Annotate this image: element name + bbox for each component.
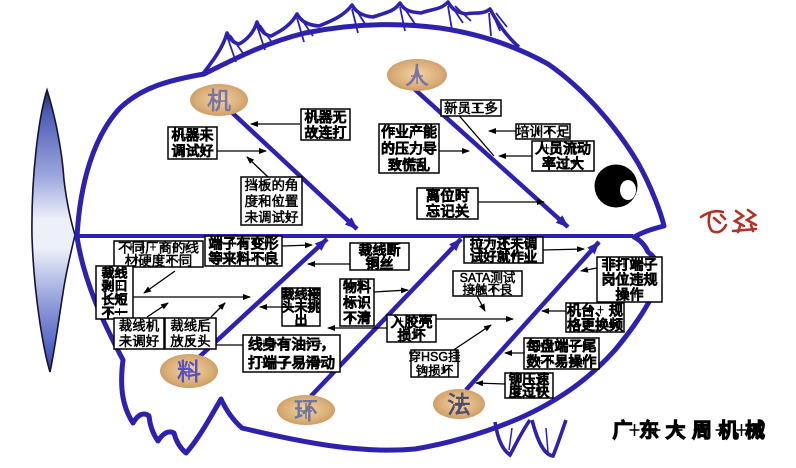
svg-text:未调试好: 未调试好 xyxy=(245,210,299,225)
svg-text:损坏: 损坏 xyxy=(398,327,426,343)
svg-text:培训不足: 培训不足 xyxy=(516,124,570,139)
svg-text:格更换频: 格更换频 xyxy=(567,317,623,333)
svg-text:非打端子: 非打端子 xyxy=(602,257,658,273)
svg-text:打端子易滑动: 打端子易滑动 xyxy=(248,354,335,372)
svg-text:岗位违规: 岗位违规 xyxy=(602,272,658,288)
svg-text:穿HSG挂: 穿HSG挂 xyxy=(408,349,460,364)
svg-text:标识: 标识 xyxy=(342,295,371,311)
svg-text:物料: 物料 xyxy=(343,279,371,295)
svg-text:作业产能: 作业产能 xyxy=(381,124,437,140)
svg-text:的压力导: 的压力导 xyxy=(381,141,437,157)
svg-text:铜丝: 铜丝 xyxy=(366,255,394,271)
svg-text:人员流动: 人员流动 xyxy=(535,141,591,157)
svg-text:线身有油污，: 线身有油污， xyxy=(248,336,335,354)
svg-text:度和位置: 度和位置 xyxy=(245,194,299,209)
svg-text:挡板的角: 挡板的角 xyxy=(245,178,299,193)
svg-text:不清: 不清 xyxy=(343,310,371,326)
svg-text:操作: 操作 xyxy=(616,287,644,303)
